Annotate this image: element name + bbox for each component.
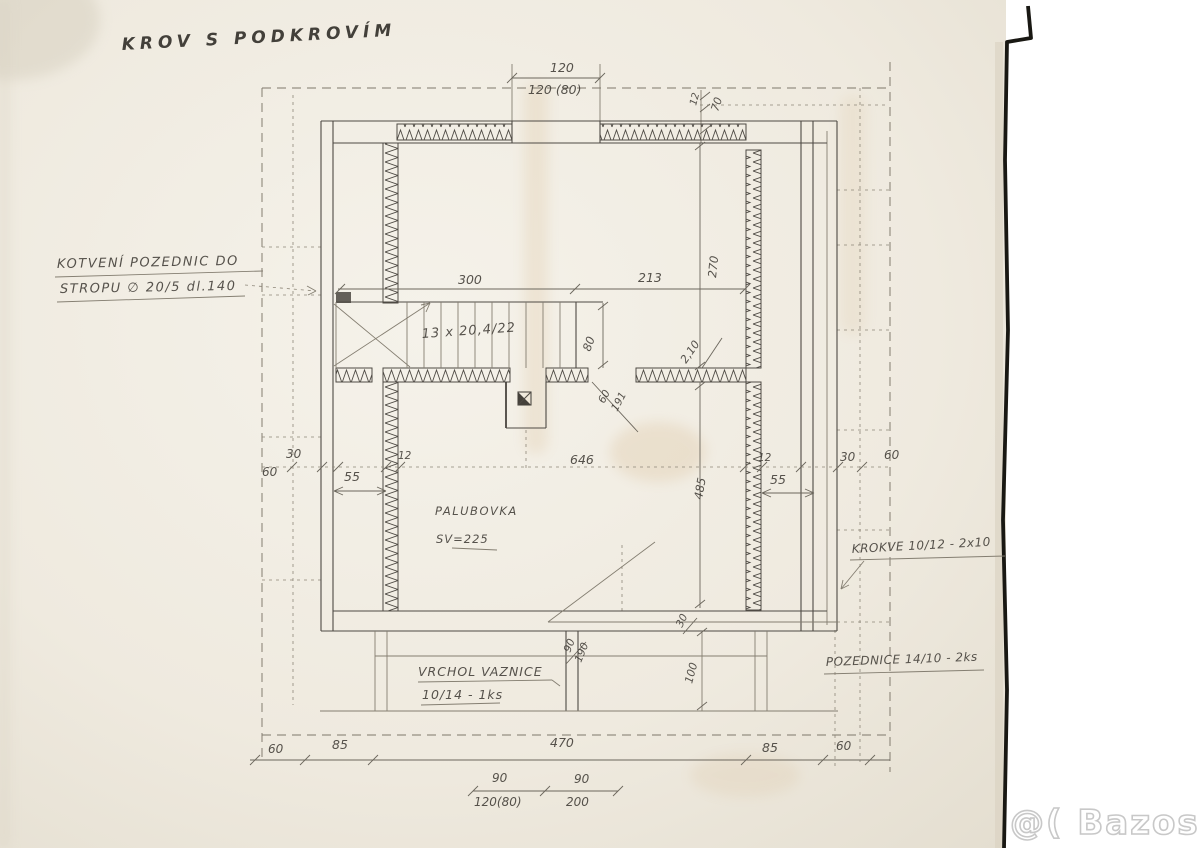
dim-213: 213 bbox=[638, 270, 662, 285]
wall-segment bbox=[383, 368, 510, 382]
dim-bottom-60-left: 60 bbox=[268, 742, 284, 756]
dim-left-60: 60 bbox=[262, 465, 278, 479]
dim-bottom-60-right: 60 bbox=[836, 739, 852, 753]
wall-segment bbox=[383, 143, 398, 303]
wall-segment bbox=[636, 368, 746, 382]
dim-top-120-80: 120 (80) bbox=[528, 82, 582, 97]
scanned-blueprint-page: KROV S PODKROVÍMKOTVENÍ POZEDNIC DOSTROP… bbox=[0, 0, 1200, 848]
wall-segment bbox=[336, 368, 372, 382]
dim-sub-120-80: 120(80) bbox=[474, 795, 522, 809]
wall-segment bbox=[546, 368, 588, 382]
paper-edge-shadow bbox=[1003, 6, 1031, 848]
note-vaznice-line1: VRCHOL VAZNICE bbox=[418, 664, 543, 679]
dim-right-12: 12 bbox=[758, 452, 772, 464]
dim-top-120: 120 bbox=[550, 60, 574, 75]
paper-sheet bbox=[0, 0, 1031, 848]
dim-sub-90-right: 90 bbox=[574, 772, 590, 786]
pozednice-anchor-block bbox=[336, 292, 351, 303]
wall-segment bbox=[397, 124, 512, 140]
dim-right-60: 60 bbox=[884, 448, 900, 462]
wall-segment bbox=[746, 150, 761, 368]
wall-segment bbox=[383, 382, 398, 611]
dim-left-30: 30 bbox=[286, 447, 302, 461]
paper-edge-soft-shadow bbox=[995, 42, 1003, 848]
dim-right-55: 55 bbox=[770, 472, 786, 487]
dim-sub-90-left: 90 bbox=[492, 771, 508, 785]
note-palubovka: PALUBOVKA bbox=[435, 504, 518, 518]
watermark: @( Bazos.cz bbox=[1010, 803, 1200, 843]
note-vaznice-line2: 10/14 - 1ks bbox=[422, 687, 503, 702]
dim-sub-200: 200 bbox=[566, 795, 589, 809]
dim-left-12: 12 bbox=[398, 450, 412, 462]
dim-bottom-470: 470 bbox=[550, 735, 574, 750]
dim-bottom-85-left: 85 bbox=[332, 737, 348, 752]
note-palubovka-sv: SV=225 bbox=[436, 532, 489, 546]
dim-270: 270 bbox=[705, 255, 721, 278]
dim-right-30: 30 bbox=[840, 450, 856, 464]
note-anchoring-line2: STROPU ∅ 20/5 dl.140 bbox=[60, 279, 237, 297]
wall-segment bbox=[746, 382, 761, 610]
dim-300: 300 bbox=[458, 272, 482, 287]
blueprint-drawing: KROV S PODKROVÍMKOTVENÍ POZEDNIC DOSTROP… bbox=[0, 0, 1200, 848]
note-anchoring-line1: KOTVENÍ POZEDNIC DO bbox=[57, 253, 239, 272]
dim-left-55: 55 bbox=[344, 469, 360, 484]
dim-bottom-85-right: 85 bbox=[762, 740, 778, 755]
dim-646: 646 bbox=[570, 452, 594, 467]
wall-segment bbox=[600, 124, 746, 140]
